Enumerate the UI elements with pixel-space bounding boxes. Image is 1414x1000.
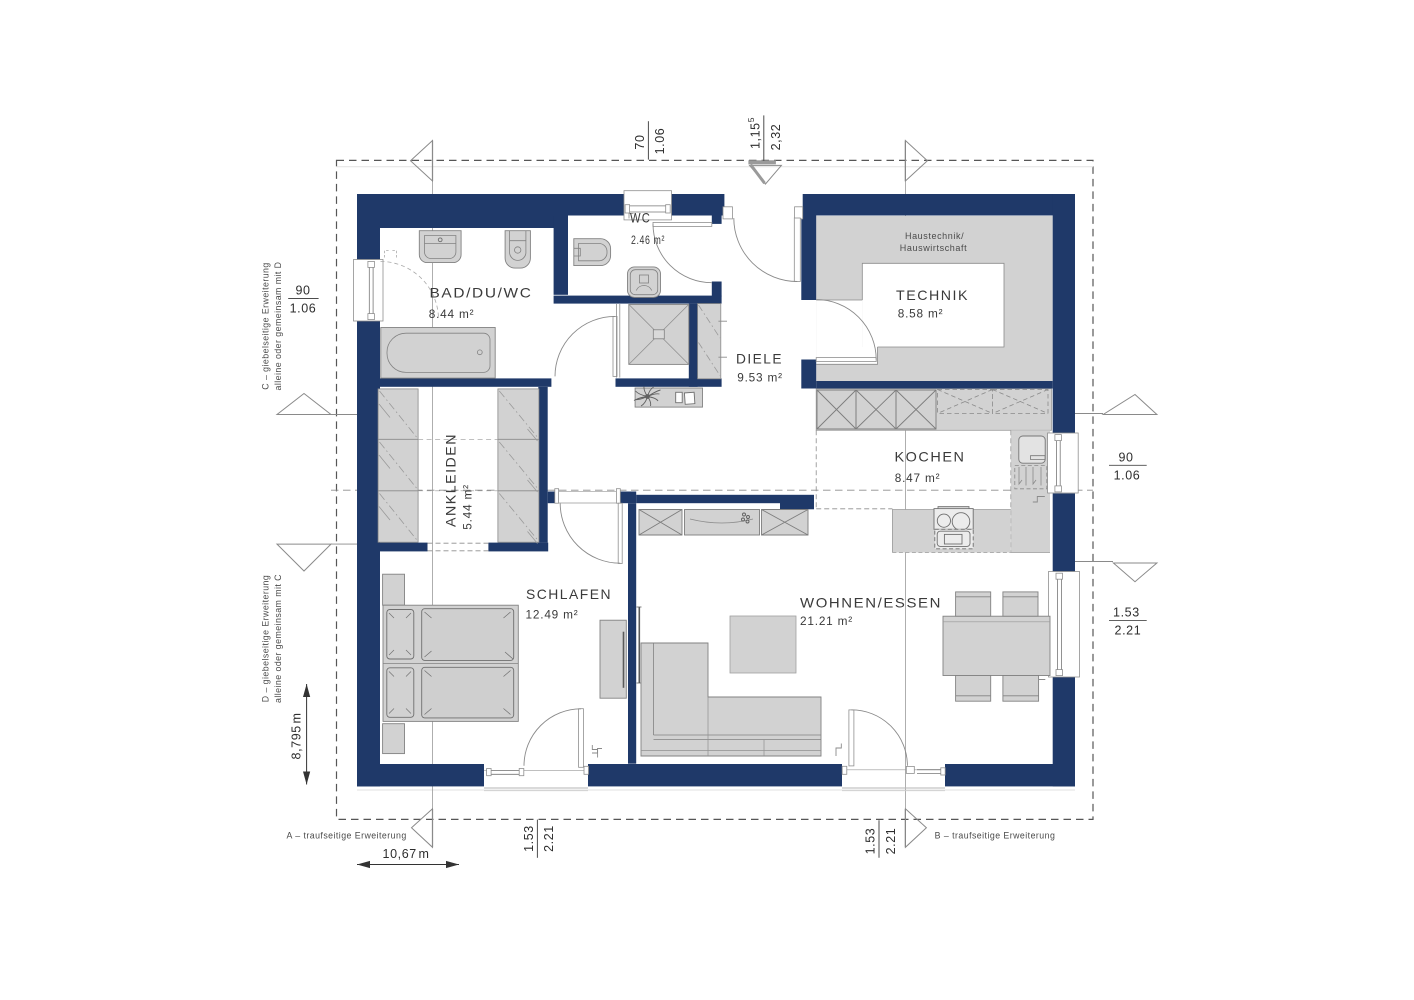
svg-text:alleine oder gemeinsam mit D: alleine oder gemeinsam mit D bbox=[273, 262, 283, 391]
svg-text:8.58 m²: 8.58 m² bbox=[898, 307, 944, 321]
svg-text:10,67 m: 10,67 m bbox=[383, 847, 430, 861]
svg-text:TECHNIK: TECHNIK bbox=[896, 287, 969, 303]
svg-text:70: 70 bbox=[633, 134, 647, 149]
svg-text:WC: WC bbox=[630, 210, 651, 226]
svg-text:ANKLEIDEN: ANKLEIDEN bbox=[443, 433, 459, 527]
svg-text:D – giebelseitige Erweiterung: D – giebelseitige Erweiterung bbox=[261, 575, 271, 702]
svg-text:1.53: 1.53 bbox=[863, 828, 877, 855]
svg-text:1.06: 1.06 bbox=[1114, 469, 1141, 483]
svg-text:BAD/DU/WC: BAD/DU/WC bbox=[430, 285, 533, 301]
svg-text:Hauswirtschaft: Hauswirtschaft bbox=[900, 243, 967, 253]
svg-text:1.53: 1.53 bbox=[522, 825, 536, 852]
svg-text:5.44 m²: 5.44 m² bbox=[461, 484, 475, 530]
svg-text:21.21 m²: 21.21 m² bbox=[800, 614, 853, 628]
svg-text:SCHLAFEN: SCHLAFEN bbox=[526, 586, 612, 602]
svg-text:C – giebelseitige Erweiterung: C – giebelseitige Erweiterung bbox=[261, 262, 271, 389]
svg-text:alleine oder gemeinsam mit C: alleine oder gemeinsam mit C bbox=[273, 574, 283, 703]
svg-text:KOCHEN: KOCHEN bbox=[895, 448, 966, 464]
svg-text:1.06: 1.06 bbox=[653, 128, 667, 155]
svg-text:12.49 m²: 12.49 m² bbox=[526, 608, 579, 622]
svg-text:1.06: 1.06 bbox=[290, 302, 317, 316]
svg-text:8.47 m²: 8.47 m² bbox=[895, 471, 941, 485]
svg-text:2.21: 2.21 bbox=[884, 828, 898, 855]
svg-text:Haustechnik/: Haustechnik/ bbox=[905, 231, 964, 241]
svg-text:DIELE: DIELE bbox=[736, 351, 783, 367]
svg-text:90: 90 bbox=[1118, 451, 1133, 465]
svg-text:8.44 m²: 8.44 m² bbox=[429, 307, 475, 321]
svg-text:B – traufseitige Erweiterung: B – traufseitige Erweiterung bbox=[935, 831, 1056, 841]
svg-text:WOHNEN/ESSEN: WOHNEN/ESSEN bbox=[800, 594, 942, 610]
svg-text:A – traufseitige Erweiterung: A – traufseitige Erweiterung bbox=[287, 831, 407, 841]
svg-text:1.53: 1.53 bbox=[1113, 606, 1140, 620]
svg-text:90: 90 bbox=[295, 284, 310, 298]
svg-text:2.46 m²: 2.46 m² bbox=[631, 233, 665, 247]
svg-text:8,795 m: 8,795 m bbox=[289, 713, 303, 760]
svg-text:9.53 m²: 9.53 m² bbox=[737, 371, 783, 385]
svg-text:2,32: 2,32 bbox=[769, 124, 783, 151]
svg-text:2.21: 2.21 bbox=[542, 825, 556, 852]
svg-text:2.21: 2.21 bbox=[1115, 624, 1142, 638]
